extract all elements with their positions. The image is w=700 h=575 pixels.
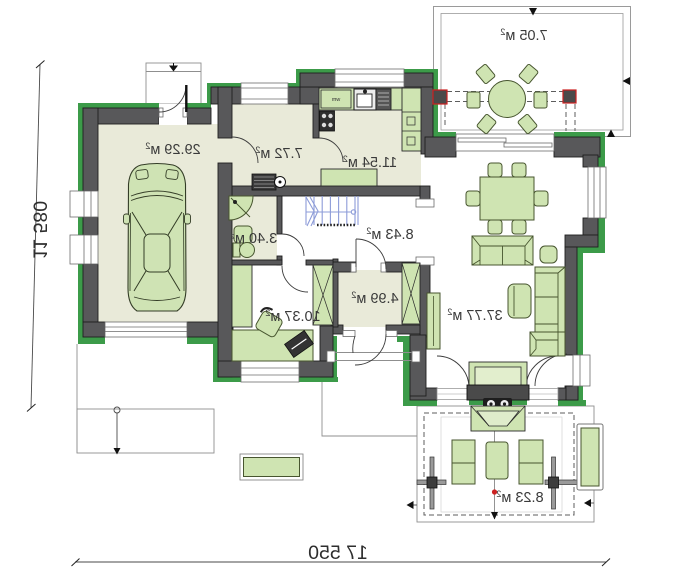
- svg-text:37.77 м2: 37.77 м2: [447, 307, 502, 324]
- svg-text:7.05 м2: 7.05 м2: [500, 27, 547, 44]
- svg-text:8.43 м2: 8.43 м2: [366, 226, 413, 243]
- svg-text:4.99 м2: 4.99 м2: [351, 290, 398, 307]
- svg-text:7.72 м2: 7.72 м2: [255, 145, 302, 162]
- svg-text:wm: wm: [331, 97, 341, 103]
- svg-text:10.37 м2: 10.37 м2: [265, 308, 320, 325]
- svg-text:17 550: 17 550: [308, 542, 368, 564]
- svg-text:3.40 м2: 3.40 м2: [231, 231, 277, 247]
- svg-text:11.54 м2: 11.54 м2: [343, 154, 397, 171]
- svg-text:11 580: 11 580: [29, 201, 51, 259]
- svg-text:8.23 м2: 8.23 м2: [496, 489, 543, 506]
- svg-text:29.29 м2: 29.29 м2: [145, 141, 200, 158]
